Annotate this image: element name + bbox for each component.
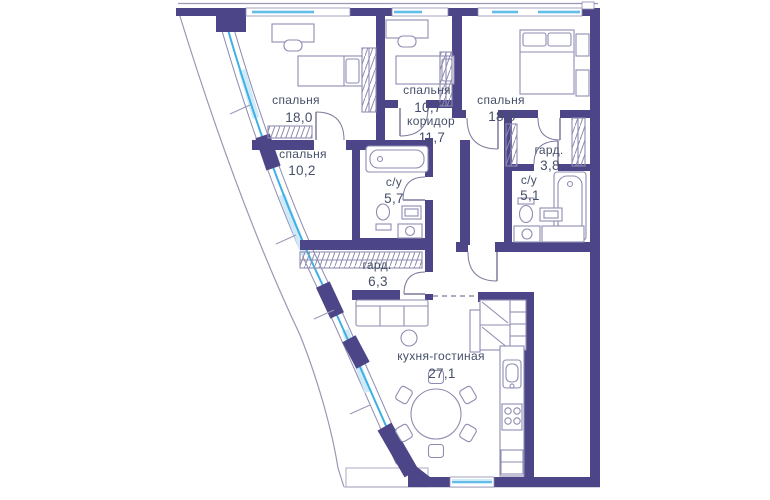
console-cabinet	[470, 310, 480, 352]
wardrobe-rack	[300, 252, 422, 268]
washing-machine	[398, 224, 422, 238]
cabinet	[542, 226, 584, 242]
svg-text:6,3: 6,3	[368, 274, 388, 289]
door-wardrobe-1	[538, 118, 560, 140]
room-label-bathroom-2: с/у 5,1	[520, 173, 540, 203]
wardrobe-rack	[362, 48, 376, 112]
pouf	[401, 330, 417, 346]
bed	[298, 56, 362, 86]
door-bedroom-1	[316, 112, 344, 140]
room-label-wardrobe-1: гард. 3,8	[534, 143, 563, 173]
svg-text:5,1: 5,1	[520, 188, 540, 203]
svg-text:11,7: 11,7	[419, 130, 445, 145]
svg-text:спальня: спальня	[477, 93, 525, 107]
radiator	[268, 126, 312, 138]
chair	[459, 423, 478, 442]
wardrobe-rack	[440, 52, 452, 106]
window-bottom	[450, 477, 494, 487]
svg-text:кухня-гостиная: кухня-гостиная	[397, 349, 485, 363]
svg-text:спальня: спальня	[279, 147, 327, 161]
nightstand	[576, 34, 589, 96]
room-label-wardrobe-2: гард. 6,3	[362, 258, 391, 289]
svg-text:10,7: 10,7	[414, 100, 441, 115]
stove	[502, 404, 522, 430]
chair	[459, 385, 478, 404]
svg-text:коридор: коридор	[407, 114, 455, 128]
room-label-kitchen-living: кухня-гостиная 27,1	[397, 349, 485, 381]
wardrobe-rack	[572, 118, 585, 166]
entry-closet	[480, 300, 526, 350]
door-wardrobe-2	[404, 272, 425, 294]
svg-text:10,2: 10,2	[288, 163, 315, 178]
svg-text:с/у: с/у	[386, 175, 402, 189]
svg-text:18,0: 18,0	[488, 109, 515, 124]
facade-notch	[582, 2, 594, 9]
svg-text:спальня: спальня	[272, 93, 320, 107]
room-label-bedroom-3: спальня 18,0	[477, 93, 525, 124]
washing-machine	[514, 226, 540, 242]
desk	[272, 24, 314, 51]
toilet	[376, 204, 391, 230]
desk	[386, 20, 428, 47]
svg-text:гард.: гард.	[362, 258, 391, 272]
dining-table-set	[395, 371, 478, 458]
double-bed	[520, 30, 574, 94]
window-top-1	[246, 8, 350, 16]
sink	[540, 208, 562, 221]
bathtub	[366, 146, 428, 172]
kitchen-sink	[503, 360, 521, 388]
door-bathroom-1	[403, 177, 425, 200]
floor-plan: спальня 18,0 спальня 10,7 спальня 18,0 к…	[0, 0, 770, 500]
fridge	[501, 450, 523, 474]
svg-text:гард.: гард.	[534, 143, 563, 157]
svg-text:спальня: спальня	[403, 83, 451, 97]
chair	[395, 385, 414, 404]
svg-text:27,1: 27,1	[428, 366, 455, 381]
svg-text:5,7: 5,7	[384, 191, 404, 206]
wardrobe-rack	[506, 124, 517, 166]
floor-plan-svg: спальня 18,0 спальня 10,7 спальня 18,0 к…	[0, 0, 770, 500]
svg-text:18,0: 18,0	[285, 110, 312, 125]
window-top-2	[392, 8, 448, 16]
dining-table	[411, 389, 461, 439]
svg-text:с/у: с/у	[521, 173, 537, 187]
svg-text:3,8: 3,8	[540, 158, 560, 173]
door-entry	[468, 252, 497, 281]
sink	[402, 206, 421, 219]
window-top-3	[478, 8, 582, 16]
room-label-bedroom-1: спальня 18,0	[272, 93, 320, 125]
chair	[429, 445, 444, 458]
sofa	[356, 300, 428, 326]
room-label-bedroom-4: спальня 10,2	[279, 147, 327, 178]
room-label-bathroom-1: с/у 5,7	[384, 175, 404, 206]
